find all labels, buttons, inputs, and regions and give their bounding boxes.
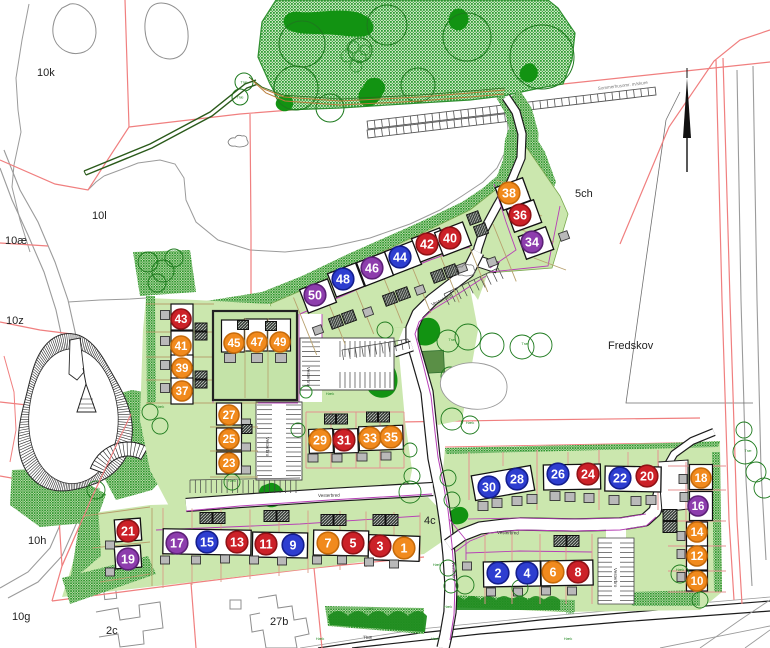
svg-text:Hæk: Hæk [326,391,334,396]
svg-text:34: 34 [525,236,539,250]
svg-text:39: 39 [176,363,189,375]
svg-text:43: 43 [175,314,188,326]
svg-text:Vesterbro: Vesterbro [265,437,270,457]
svg-text:44: 44 [393,251,407,265]
svg-text:Hæk: Hæk [564,636,572,641]
svg-text:28: 28 [510,473,524,487]
svg-text:42: 42 [420,238,434,252]
svg-text:Hæk: Hæk [431,636,439,641]
svg-text:10: 10 [691,576,704,588]
svg-text:4: 4 [524,567,531,581]
svg-text:2: 2 [495,567,502,581]
svg-text:Vesterbred: Vesterbred [497,530,519,535]
svg-text:10æ: 10æ [5,235,27,247]
svg-text:25: 25 [223,434,236,446]
svg-text:47: 47 [251,337,264,349]
svg-text:Hæk: Hæk [676,567,684,572]
svg-text:16: 16 [692,501,705,513]
svg-text:Hæk: Hæk [444,604,452,609]
svg-text:10h: 10h [28,535,46,547]
svg-text:1: 1 [401,542,408,556]
svg-text:37: 37 [176,386,189,398]
svg-text:48: 48 [336,273,350,287]
svg-text:49: 49 [274,337,287,349]
svg-text:8: 8 [575,566,582,580]
svg-text:Hæk: Hæk [228,478,236,483]
svg-text:50: 50 [308,289,322,303]
svg-text:Fredskov: Fredskov [608,340,654,352]
svg-text:Tbæ: Tbæ [363,634,373,640]
svg-text:5ch: 5ch [575,188,593,200]
svg-text:10g: 10g [12,611,30,623]
svg-text:23: 23 [223,458,236,470]
svg-text:Hæk: Hæk [466,420,474,425]
svg-text:Træ: Træ [744,448,752,453]
svg-text:33: 33 [363,432,377,446]
svg-text:17: 17 [170,537,184,551]
svg-text:19: 19 [121,553,135,567]
svg-text:Hæk: Hæk [156,404,164,409]
svg-text:Hæk: Hæk [316,636,324,641]
svg-text:14: 14 [691,527,704,539]
svg-text:Vesterbred: Vesterbred [318,493,340,498]
svg-text:18: 18 [695,473,708,485]
svg-text:7: 7 [325,537,332,551]
svg-text:10z: 10z [6,315,24,327]
svg-text:Træ: Træ [448,337,456,342]
svg-text:22: 22 [613,472,627,486]
svg-text:35: 35 [384,431,398,445]
svg-text:12: 12 [691,551,704,563]
svg-text:Hæk: Hæk [366,606,374,611]
svg-text:Træ: Træ [521,341,529,346]
svg-text:5: 5 [350,537,357,551]
svg-text:9: 9 [290,539,297,553]
svg-text:38: 38 [502,187,516,201]
svg-text:21: 21 [121,525,135,539]
svg-text:40: 40 [443,232,457,246]
svg-text:30: 30 [482,481,496,495]
svg-text:41: 41 [175,341,188,353]
svg-text:Hæk: Hæk [566,610,574,615]
svg-text:10l: 10l [92,210,107,222]
svg-text:46: 46 [365,262,379,276]
svg-text:24: 24 [581,468,595,482]
svg-text:20: 20 [640,470,654,484]
svg-text:10k: 10k [37,67,55,79]
svg-text:Vesterbro: Vesterbro [451,562,457,582]
svg-text:31: 31 [337,434,351,448]
svg-text:15: 15 [200,536,214,550]
svg-text:6: 6 [550,566,557,580]
svg-text:Hæk: Hæk [433,562,441,567]
svg-text:2c: 2c [106,625,118,637]
svg-text:27b: 27b [270,616,288,628]
svg-text:13: 13 [230,536,244,550]
svg-text:4c: 4c [424,515,436,527]
svg-text:36: 36 [513,209,527,223]
svg-text:11: 11 [259,538,272,552]
svg-text:3: 3 [377,540,384,554]
svg-text:Vesterbro: Vesterbro [306,367,311,387]
svg-text:Vesterbro: Vesterbro [613,568,618,588]
svg-text:45: 45 [228,338,241,350]
svg-text:27: 27 [223,410,236,422]
svg-text:26: 26 [551,468,565,482]
svg-text:29: 29 [313,434,327,448]
